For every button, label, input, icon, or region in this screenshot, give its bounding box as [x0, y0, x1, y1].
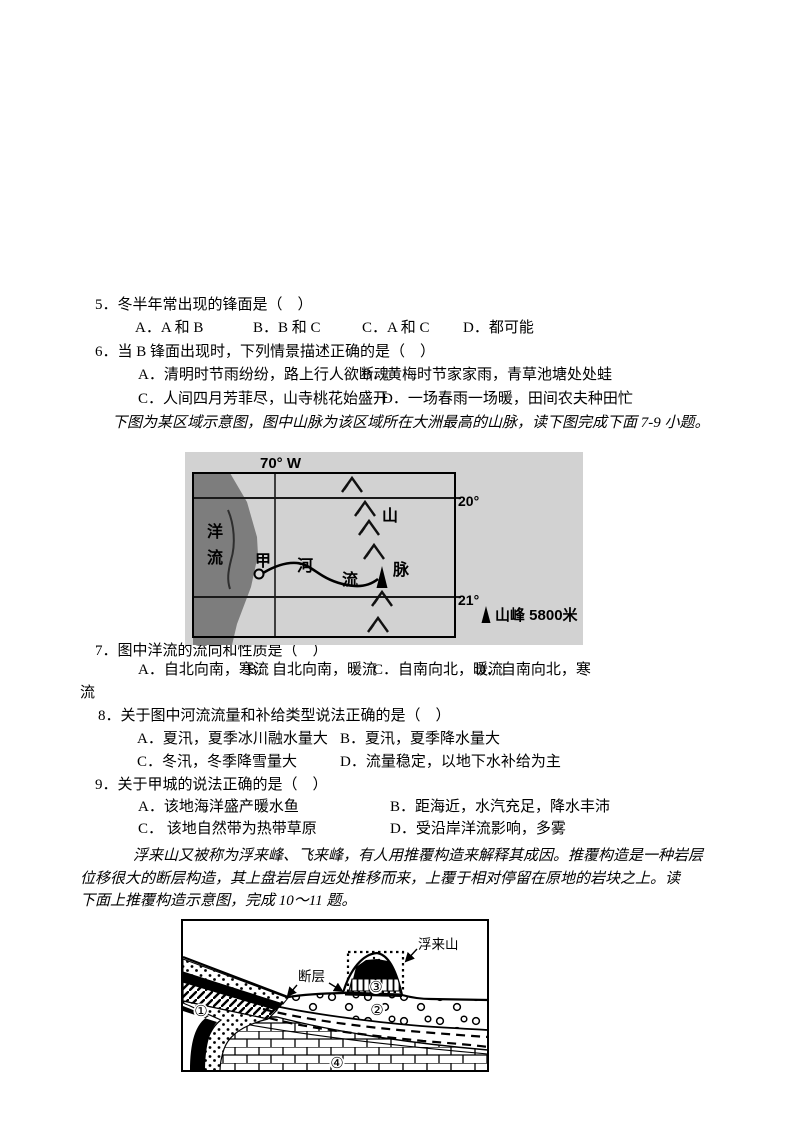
intro-10-11-line3: 下面上推覆构造示意图，完成 10～11 题。 — [80, 892, 356, 910]
legend-label: 山峰 5800米 — [495, 606, 579, 624]
layer-2-label: ② — [370, 1002, 383, 1019]
river-label-2: 流 — [342, 570, 358, 589]
lat-21-label: 21° — [458, 592, 479, 608]
q5-stem: 5．冬半年常出现的锋面是（ ） — [95, 296, 313, 314]
city-label: 甲 — [255, 552, 271, 570]
q6-option-b: B．黄梅时节家家雨，青草池塘处处蛙 — [362, 366, 612, 384]
fulai-label: 浮来山 — [418, 937, 459, 952]
q5-option-a: A．A 和 B — [135, 319, 203, 337]
intro-7-9: 下图为某区域示意图，图中山脉为该区域所在大洲最高的山脉，读下图完成下面 7-9 … — [112, 414, 710, 432]
range-label-1: 山 — [382, 507, 398, 525]
layer-3-label: ③ — [369, 979, 382, 996]
q6-option-a: A．清明时节雨纷纷，路上行人欲断魂 — [138, 366, 389, 384]
q9-option-a: A．该地海洋盛产暖水鱼 — [138, 798, 299, 816]
fault-label: 断层 — [298, 969, 325, 984]
region-map-figure: 70° W 20° 21° 洋 流 甲 河 流 山 脉 山峰 5800米 — [185, 452, 583, 645]
nappe-structure-figure: 断层 浮来山 ① ② ③ ④ — [181, 919, 489, 1072]
q5-option-d: D．都可能 — [463, 319, 534, 337]
q9-option-d: D．受沿岸洋流影响，多雾 — [390, 820, 566, 838]
ocean-current-label-2: 流 — [207, 548, 223, 567]
q9-option-c: C． 该地自然带为热带草原 — [138, 820, 317, 838]
region-map-svg: 70° W 20° 21° 洋 流 甲 河 流 山 脉 山峰 5800米 — [185, 452, 583, 645]
q5-option-c: C．A 和 C — [362, 319, 430, 337]
q8-stem: 8．关于图中河流流量和补给类型说法正确的是（ ） — [98, 707, 451, 725]
q8-option-c: C．冬汛，冬季降雪量大 — [137, 753, 297, 771]
q8-option-b: B．夏汛，夏季降水量大 — [340, 730, 500, 748]
q7-option-d-wrap: 流 — [80, 684, 95, 702]
hill-cap-dot — [373, 957, 375, 959]
q6-option-c: C．人间四月芳菲尽，山寺桃花始盛开 — [138, 390, 388, 408]
layer-4-label: ④ — [330, 1055, 343, 1072]
intro-10-11-line1: 浮来山又被称为浮来峰、飞来峰，有人用推覆构造来解释其成因。推覆构造是一种岩层 — [133, 847, 703, 865]
nappe-structure-svg: 断层 浮来山 ① ② ③ ④ — [181, 919, 489, 1072]
intro-10-11-line2: 位移很大的断层构造，其上盘岩层自远处推移而来，上覆于相对停留在原地的岩块之上。读 — [80, 870, 680, 888]
q7-option-b: B．自北向南，暖流 — [247, 661, 377, 679]
ocean-current-label-1: 洋 — [207, 522, 223, 541]
q6-stem: 6．当 B 锋面出现时，下列情景描述正确的是（ ） — [95, 343, 435, 361]
lat-20-label: 20° — [458, 493, 479, 509]
q9-option-b: B．距海近，水汽充足，降水丰沛 — [390, 798, 610, 816]
river-label-1: 河 — [297, 556, 313, 575]
q8-option-d: D．流量稳定，以地下水补给为主 — [340, 753, 561, 771]
range-label-2: 脉 — [392, 560, 410, 579]
longitude-label: 70° W — [260, 455, 302, 472]
q8-option-a: A．夏汛，夏季冰川融水量大 — [137, 730, 328, 748]
q6-option-d: D．一场春雨一场暖，田间农夫种田忙 — [382, 390, 633, 408]
exam-page: 5．冬半年常出现的锋面是（ ） A．A 和 B B．B 和 C C．A 和 C … — [0, 0, 794, 1123]
q7-option-d: D．自南向北，寒 — [475, 661, 591, 679]
city-marker — [255, 570, 264, 579]
layer-1-label: ① — [194, 1003, 207, 1020]
q9-stem: 9．关于甲城的说法正确的是（ ） — [95, 776, 328, 794]
q5-option-b: B．B 和 C — [253, 319, 321, 337]
